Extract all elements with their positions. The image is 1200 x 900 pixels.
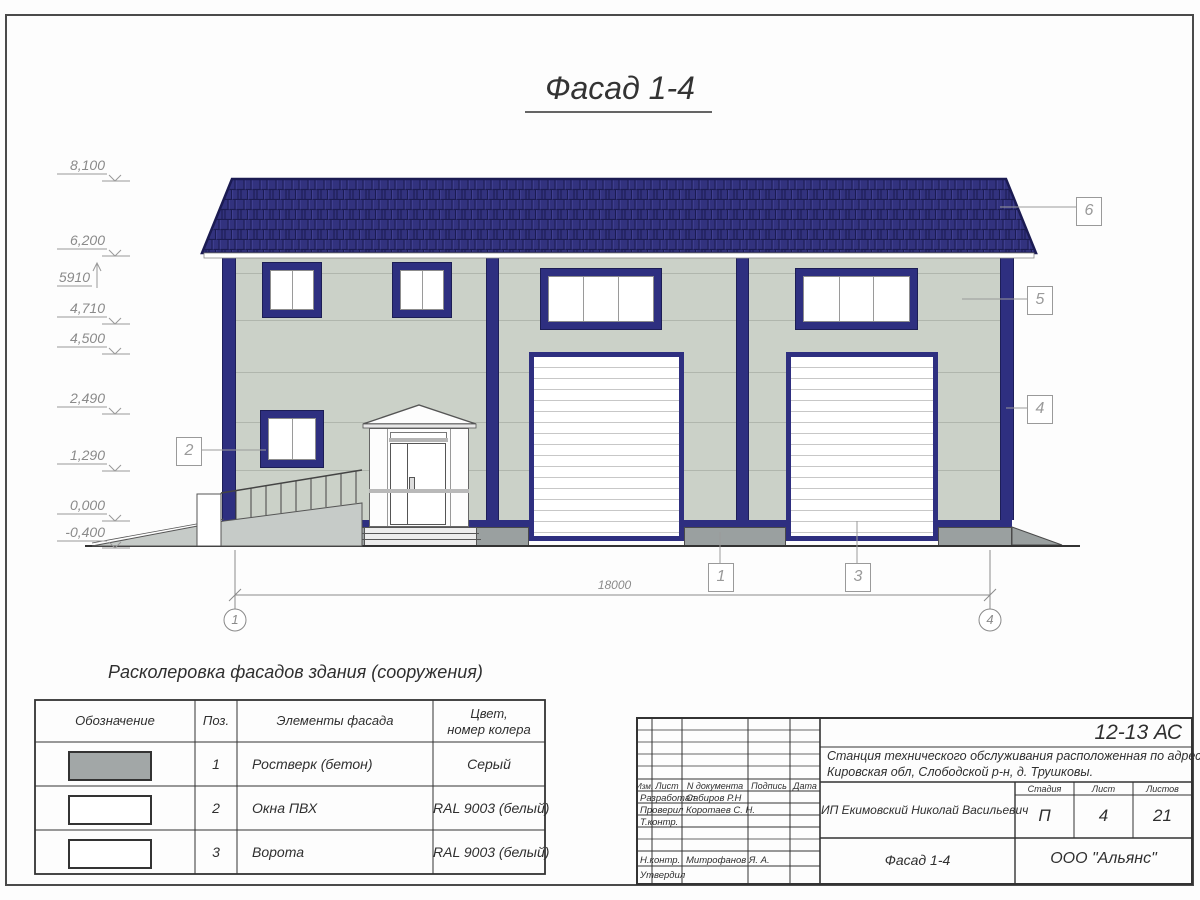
garage-door-right [786, 352, 938, 541]
elevation-value: 5910 [40, 269, 90, 285]
window-middle-section [540, 268, 662, 330]
window-glass [803, 276, 910, 322]
col-doc: N документа [682, 781, 748, 791]
sheet-title: Фасад 1-4 [470, 70, 770, 107]
window-2nd-floor-left-1 [262, 262, 322, 318]
doc-code: 12-13 АС [900, 721, 1182, 745]
stage-label: Стадия [1015, 784, 1074, 794]
row-element: Ворота [252, 844, 304, 860]
window-glass [270, 270, 314, 310]
color-table-title: Расколеровка фасадов здания (сооружения) [108, 662, 483, 683]
col-list: Лист [652, 781, 682, 791]
role-label: Н.контр. [640, 855, 680, 866]
callout-5: 5 [1027, 286, 1053, 315]
callout-1: 1 [708, 563, 734, 592]
col-header-color-2: номер колера [433, 722, 545, 737]
corner-pilaster-right [1000, 257, 1014, 520]
row-pos: 3 [195, 844, 237, 860]
elevation-value: 6,200 [55, 232, 105, 248]
elevation-value: 0,000 [55, 497, 105, 513]
row-color: Серый [433, 756, 545, 772]
door-head-band [389, 438, 448, 442]
swatch-vorota [68, 839, 152, 869]
window-2nd-floor-left-2 [392, 262, 452, 318]
row-color: RAL 9003 (белый) [433, 800, 545, 816]
axis-bubble-4: 4 [980, 612, 1000, 627]
client-name: ИП Екимовский Николай Васильевич [821, 803, 1014, 817]
window-1st-floor-left [260, 410, 324, 468]
role-name: Митрофанов Я. А. [686, 855, 770, 866]
step-line [360, 539, 481, 540]
sheets-total: 21 [1133, 806, 1192, 826]
porch-panel-line [387, 429, 388, 526]
dimension-value: 18000 [552, 578, 677, 592]
organization-name: ООО "Альянс" [1015, 850, 1192, 868]
role-label: Утвердил [640, 870, 685, 881]
swatch-rostverk [68, 751, 152, 781]
col-izm: Изм. [636, 782, 652, 791]
porch-mid-rail [369, 489, 469, 493]
window-glass [268, 418, 316, 460]
plinth-middle [684, 527, 786, 546]
garage-door-middle [529, 352, 684, 541]
role-name: Коротаев С. Н. [686, 805, 755, 816]
row-element: Ростверк (бетон) [252, 756, 373, 772]
role-label: Т.контр. [640, 817, 678, 828]
project-description-line1: Станция технического обслуживания распол… [827, 749, 1200, 763]
facade-drawing-sheet: Фасад 1-4 8,100 6,200 5910 4,710 4,500 2… [0, 0, 1200, 900]
entrance-steps [364, 527, 477, 546]
pilaster-divider [486, 257, 499, 520]
axis-bubble-1: 1 [225, 612, 245, 627]
sheet-name: Фасад 1-4 [821, 852, 1014, 868]
callout-4: 4 [1027, 395, 1053, 424]
step-line [362, 533, 479, 534]
sheet-label: Лист [1074, 784, 1133, 794]
pilaster-divider [736, 257, 749, 520]
swatch-okna [68, 795, 152, 825]
col-header-designation: Обозначение [35, 713, 195, 728]
entrance-door [390, 443, 446, 525]
elevation-value: 8,100 [55, 157, 105, 173]
callout-6: 6 [1076, 197, 1102, 226]
corner-pilaster-left [222, 257, 236, 520]
row-element: Окна ПВХ [252, 800, 317, 816]
stage-value: П [1015, 806, 1074, 826]
role-label: Проверил [640, 805, 683, 816]
elevation-value: 1,290 [55, 447, 105, 463]
callout-3: 3 [845, 563, 871, 592]
col-sign: Подпись [748, 781, 790, 791]
row-pos: 2 [195, 800, 237, 816]
window-right-section [795, 268, 918, 330]
project-description-line2: Кировская обл, Слободской р-н, д. Трушко… [827, 765, 1093, 779]
plinth-right [938, 527, 1012, 546]
elevation-value: 2,490 [55, 390, 105, 406]
callout-2: 2 [176, 437, 202, 466]
elevation-value: 4,710 [55, 300, 105, 316]
sheets-label: Листов [1133, 784, 1192, 794]
row-pos: 1 [195, 756, 237, 772]
col-date: Дата [790, 781, 820, 791]
porch-panel-line [450, 429, 451, 526]
col-header-element: Элементы фасада [237, 713, 433, 728]
window-glass [400, 270, 444, 310]
elevation-value: -0,400 [55, 524, 105, 540]
col-header-color-1: Цвет, [433, 706, 545, 721]
window-glass [548, 276, 654, 322]
sheet-number: 4 [1074, 806, 1133, 826]
col-header-pos: Поз. [195, 713, 237, 728]
door-leaf-split [407, 444, 408, 524]
row-color: RAL 9003 (белый) [433, 844, 545, 860]
role-name: Сабиров Р.Н [686, 793, 741, 804]
elevation-value: 4,500 [55, 330, 105, 346]
